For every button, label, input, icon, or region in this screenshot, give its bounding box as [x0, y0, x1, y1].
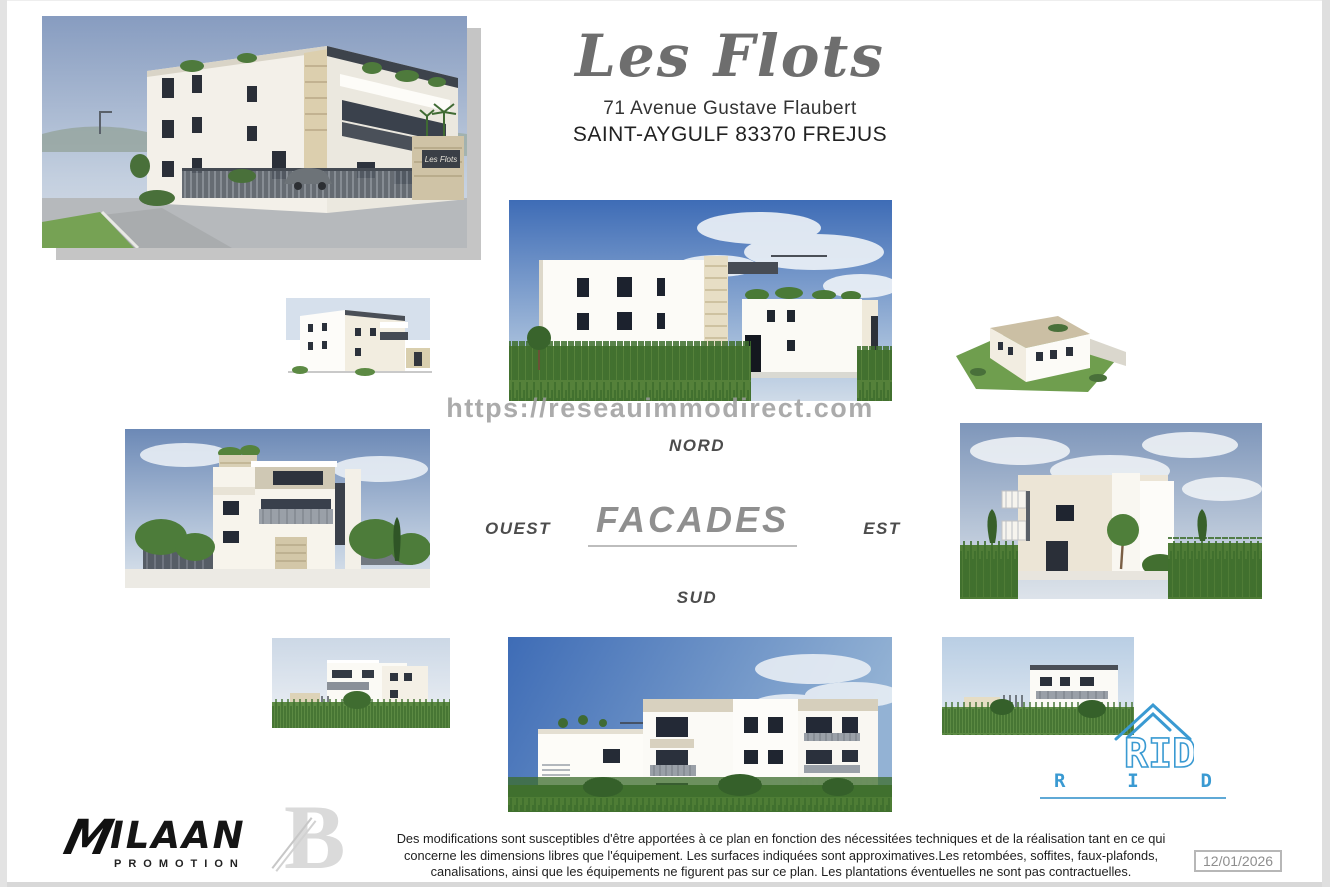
date-stamp: 12/01/2026 [1194, 850, 1282, 872]
address-line2: SAINT-AYGULF 83370 FREJUS [470, 123, 990, 147]
watermark-url: https://reseauimmodirect.com [335, 393, 985, 424]
section-title-facades: FACADES [560, 499, 825, 547]
facades-plan-page: Les Flots Les Flots 71 Avenue Gustave Fl… [0, 0, 1330, 887]
rid-letter-i: I [1127, 770, 1138, 792]
render-nord-facade [509, 200, 892, 401]
thumb-left-icon [270, 290, 445, 390]
render-est-facade [960, 423, 1262, 599]
thumb-perspective-bottom-left [272, 638, 450, 728]
rid-icon-text: RID [1124, 731, 1194, 775]
page-title: Les Flots [470, 22, 990, 90]
ilaan-name: ILAAN [110, 814, 246, 857]
rid-logo-underline [1040, 797, 1226, 799]
disclaimer-line-1: Des modifications sont susceptibles d'êt… [372, 831, 1190, 848]
architect-b-logo: B [258, 790, 368, 887]
hero-perspective-render: Les Flots [42, 16, 467, 248]
label-sud: SUD [597, 588, 797, 608]
address-line1: 71 Avenue Gustave Flaubert [470, 98, 990, 120]
disclaimer-line-3: canalisations, ainsi que les équipements… [372, 864, 1190, 881]
thumb-aerial-icon [938, 294, 1138, 400]
label-ouest: OUEST [462, 519, 574, 539]
rid-logo-letters: R I D [1040, 770, 1226, 792]
thumb-bottom-left-icon [272, 638, 450, 728]
label-est: EST [826, 519, 938, 539]
render-ouest-facade [125, 429, 430, 588]
disclaimer-line-2: concerne les dimensions libres que l'équ… [372, 848, 1190, 865]
rid-letter-d: D [1201, 770, 1212, 792]
architect-b-letter: B [284, 784, 345, 887]
nord-facade-icon [509, 200, 892, 401]
thumb-perspective-left [270, 290, 445, 390]
ilaan-subtitle: PROMOTION [114, 858, 245, 870]
label-nord: NORD [597, 436, 797, 456]
rid-house-icon: RID [1112, 699, 1194, 775]
est-facade-icon [960, 423, 1262, 599]
header: Les Flots 71 Avenue Gustave Flaubert SAI… [470, 22, 990, 147]
render-sud-facade [508, 637, 892, 812]
rid-letter-r: R [1054, 770, 1065, 792]
ouest-facade-icon [125, 429, 430, 588]
thumb-aerial-right [938, 294, 1138, 400]
disclaimer-text: Des modifications sont susceptibles d'êt… [372, 831, 1190, 881]
sud-facade-icon [508, 637, 892, 812]
thumb-perspective-bottom-right [942, 637, 1134, 735]
facades-text: FACADES [588, 499, 797, 547]
thumb-bottom-right-icon [942, 637, 1134, 735]
ilaan-promotion-logo: M ILAAN PROMOTION [66, 808, 266, 880]
building-photo-icon: Les Flots [42, 16, 467, 248]
gate-sign-text: Les Flots [425, 155, 457, 164]
